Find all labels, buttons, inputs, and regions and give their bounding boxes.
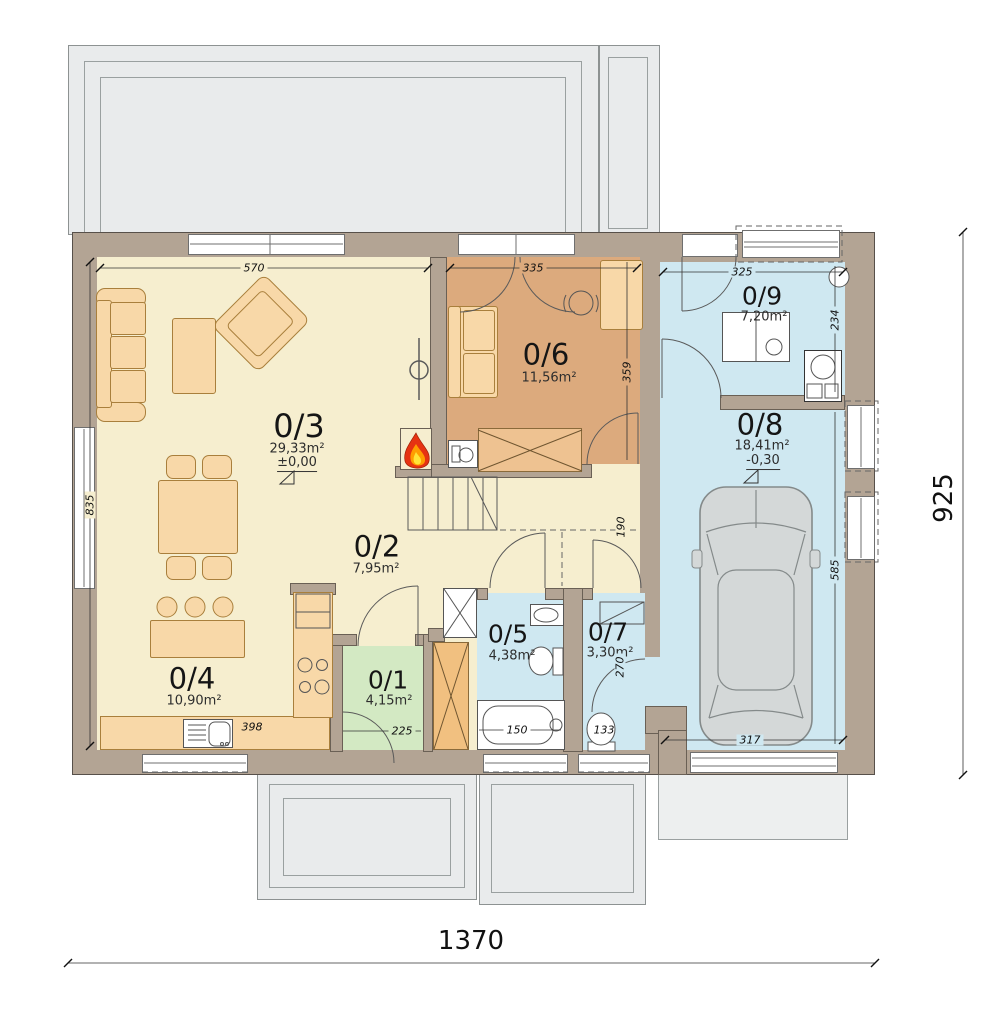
- dimension-lines: [68, 232, 963, 963]
- stairs: [408, 477, 497, 530]
- room-level-08: -0,30: [746, 454, 780, 470]
- room-area-04: 10,90m²: [166, 695, 221, 708]
- dim-359: 359: [622, 359, 633, 386]
- dim-317: 317: [737, 735, 764, 746]
- room-label-07: 0/7: [588, 620, 628, 645]
- bar-stools: [157, 597, 233, 617]
- room-area-03: 29,33m²: [269, 443, 324, 456]
- room-label-08: 0/8: [737, 411, 784, 440]
- room-label-03: 0/3: [273, 410, 325, 442]
- dim-190: 190: [616, 514, 627, 541]
- dim-270: 270: [615, 654, 626, 681]
- cross-marks: [434, 430, 582, 749]
- bathtub-drain: [550, 719, 562, 731]
- dim-335: 335: [520, 263, 547, 274]
- toilet-tank-05: [553, 648, 563, 675]
- desk-chair: [569, 291, 593, 315]
- room-area-06: 11,56m²: [521, 372, 576, 385]
- room-level-03: ±0,00: [277, 456, 317, 472]
- level-markers: [280, 470, 758, 484]
- dim-325: 325: [729, 267, 756, 278]
- room-label-06: 0/6: [523, 341, 570, 370]
- room-label-01: 0/1: [368, 668, 408, 693]
- dim-225: 225: [389, 726, 416, 737]
- washbasin-bowl: [534, 608, 558, 622]
- room-area-08: 18,41m²: [734, 440, 789, 453]
- dim-398: 398: [239, 722, 266, 733]
- room-label-02: 0/2: [354, 533, 401, 562]
- chimney-panel: [410, 338, 428, 400]
- flame-icon: [405, 433, 430, 468]
- dim-570: 570: [241, 263, 268, 274]
- room-area-01: 4,15m²: [366, 695, 413, 708]
- dim-overall-height: 925: [931, 470, 957, 526]
- dim-150: 150: [504, 725, 531, 736]
- dim-585: 585: [830, 557, 841, 584]
- room-label-05: 0/5: [488, 622, 528, 647]
- car-icon: [692, 487, 820, 745]
- room-area-05: 4,38m²: [489, 650, 536, 663]
- plan-linework: [0, 0, 1000, 1018]
- washbasin-09: [829, 267, 849, 287]
- room-label-09: 0/9: [742, 284, 782, 309]
- floor-plan: 0/3 29,33m² ±0,00 0/2 7,95m² 0/4 10,90m²…: [0, 0, 1000, 1018]
- dim-overall-width: 1370: [435, 928, 507, 954]
- room-label-04: 0/4: [169, 665, 216, 694]
- room-area-02: 7,95m²: [353, 563, 400, 576]
- dim-133: 133: [591, 725, 618, 736]
- dim-835: 835: [85, 492, 96, 519]
- room-area-09: 7,20m²: [741, 311, 788, 324]
- dim-234: 234: [830, 307, 841, 334]
